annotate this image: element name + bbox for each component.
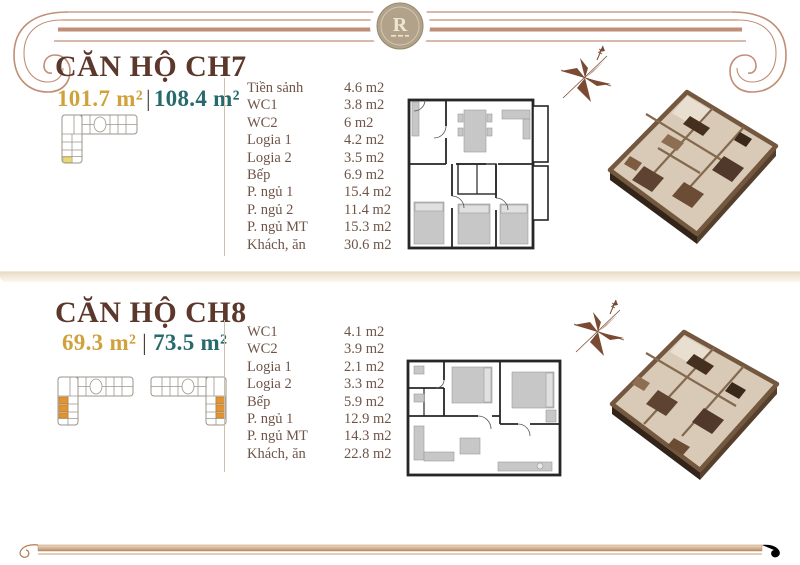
- room-label: Logia 2: [247, 150, 344, 167]
- floorplan-2d-ch8: [400, 350, 568, 486]
- room-area: 15.3 m2: [344, 219, 392, 236]
- room-row: P. ngủ 115.4 m2: [247, 184, 392, 201]
- room-row: WC14.1 m2: [247, 324, 392, 341]
- room-label: P. ngủ 1: [247, 411, 344, 428]
- room-list-ch8: WC14.1 m2 WC23.9 m2 Logia 12.1 m2 Logia …: [247, 324, 392, 463]
- room-row: P. ngủ MT15.3 m2: [247, 219, 392, 236]
- room-row: P. ngủ 211.4 m2: [247, 202, 392, 219]
- room-label: Bếp: [247, 167, 344, 184]
- room-label: P. ngủ MT: [247, 428, 344, 445]
- room-label: Khách, ăn: [247, 237, 344, 254]
- room-row: P. ngủ 112.9 m2: [247, 411, 392, 428]
- room-row: WC13.8 m2: [247, 97, 392, 114]
- room-row: P. ngủ MT14.3 m2: [247, 428, 392, 445]
- room-area: 6 m2: [344, 115, 373, 132]
- room-label: P. ngủ 1: [247, 184, 344, 201]
- keyplan-highlight-ch8: [59, 397, 68, 418]
- room-area: 12.9 m2: [344, 411, 392, 428]
- area-gross: 73.5 m²: [153, 330, 227, 355]
- list-divider: [224, 320, 225, 472]
- area-separator: |: [143, 86, 154, 111]
- room-area: 5.9 m2: [344, 394, 384, 411]
- unit-areas: 69.3 m²|73.5 m²: [62, 330, 227, 356]
- room-label: Logia 1: [247, 132, 344, 149]
- area-net: 69.3 m²: [62, 330, 136, 355]
- room-row: Tiền sảnh4.6 m2: [247, 80, 392, 97]
- room-area: 30.6 m2: [344, 237, 392, 254]
- bottom-border-ornament: [0, 536, 800, 565]
- room-area: 3.9 m2: [344, 341, 384, 358]
- floorplan-2d-ch7: [400, 86, 562, 264]
- keyplan-ch8: [42, 372, 242, 427]
- room-area: 3.8 m2: [344, 97, 384, 114]
- room-row: WC26 m2: [247, 115, 392, 132]
- room-label: Bếp: [247, 394, 344, 411]
- room-area: 15.4 m2: [344, 184, 392, 201]
- brand-caption-marks: [391, 35, 409, 37]
- room-area: 2.1 m2: [344, 359, 384, 376]
- room-row: Bếp5.9 m2: [247, 394, 392, 411]
- room-area: 6.9 m2: [344, 167, 384, 184]
- area-gross: 108.4 m²: [154, 86, 240, 111]
- room-area: 4.2 m2: [344, 132, 384, 149]
- floorplan-3d-ch8: [598, 320, 793, 488]
- room-label: Logia 2: [247, 376, 344, 393]
- brand-monogram: R: [393, 14, 408, 36]
- area-separator: |: [136, 330, 153, 355]
- room-row: Logia 12.1 m2: [247, 359, 392, 376]
- keyplan-highlight-ch7: [63, 157, 72, 163]
- brand-medallion: R: [370, 0, 430, 56]
- list-divider: [224, 78, 225, 256]
- room-row: WC23.9 m2: [247, 341, 392, 358]
- room-area: 14.3 m2: [344, 428, 392, 445]
- room-area: 4.6 m2: [344, 80, 384, 97]
- unit-title: CĂN HỘ CH8: [55, 296, 247, 330]
- section-divider: [0, 271, 800, 282]
- keyplan-ch7: [46, 110, 141, 165]
- room-label: WC1: [247, 97, 344, 114]
- room-area: 11.4 m2: [344, 202, 391, 219]
- room-label: Logia 1: [247, 359, 344, 376]
- room-row: Khách, ăn30.6 m2: [247, 237, 392, 254]
- room-row: Logia 14.2 m2: [247, 132, 392, 149]
- floorplan-3d-ch7: [592, 70, 792, 262]
- room-area: 4.1 m2: [344, 324, 384, 341]
- room-list-ch7: Tiền sảnh4.6 m2 WC13.8 m2 WC26 m2 Logia …: [247, 80, 392, 254]
- brochure-page: R CĂN HỘ CH7 101.7 m²|108.4 m²: [0, 0, 800, 565]
- room-area: 22.8 m2: [344, 446, 392, 463]
- room-area: 3.3 m2: [344, 376, 384, 393]
- room-label: WC2: [247, 341, 344, 358]
- room-label: P. ngủ 2: [247, 202, 344, 219]
- room-label: WC1: [247, 324, 344, 341]
- room-label: Khách, ăn: [247, 446, 344, 463]
- room-row: Khách, ăn22.8 m2: [247, 446, 392, 463]
- room-label: Tiền sảnh: [247, 80, 344, 97]
- room-label: P. ngủ MT: [247, 219, 344, 236]
- unit-areas: 101.7 m²|108.4 m²: [57, 86, 240, 112]
- room-row: Bếp6.9 m2: [247, 167, 392, 184]
- area-net: 101.7 m²: [57, 86, 143, 111]
- room-row: Logia 23.5 m2: [247, 150, 392, 167]
- room-label: WC2: [247, 115, 344, 132]
- unit-title: CĂN HỘ CH7: [55, 50, 247, 84]
- room-area: 3.5 m2: [344, 150, 384, 167]
- room-row: Logia 23.3 m2: [247, 376, 392, 393]
